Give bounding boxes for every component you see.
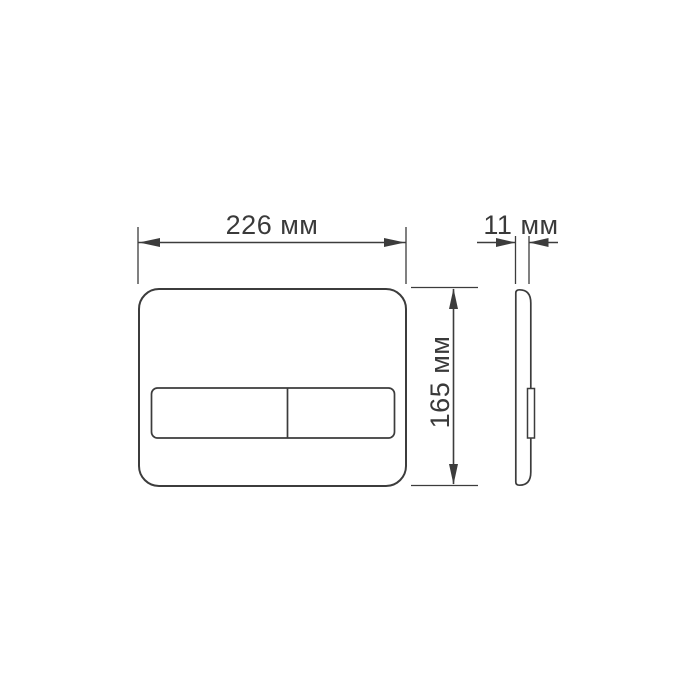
depth-dimension-label: 11 мм [483,210,558,240]
height-dimension: 165 мм [411,288,478,486]
width-dimension-label: 226 мм [226,210,319,240]
arrow-up-icon [449,289,458,310]
flush-buttons-outline [152,388,395,438]
side-view [516,290,535,485]
front-view [139,289,406,486]
technical-drawing-canvas: 226 мм 165 мм 11 мм [0,0,700,700]
depth-dimension: 11 мм [477,210,559,284]
flush-plate-dimension-drawing: 226 мм 165 мм 11 мм [0,0,700,700]
side-profile-outline [516,290,531,485]
width-dimension: 226 мм [138,210,406,284]
arrow-down-icon [449,464,458,485]
side-button-protrusion [528,389,535,439]
arrow-right-icon [384,238,405,247]
height-dimension-label: 165 мм [425,336,455,429]
arrow-left-icon [139,238,160,247]
